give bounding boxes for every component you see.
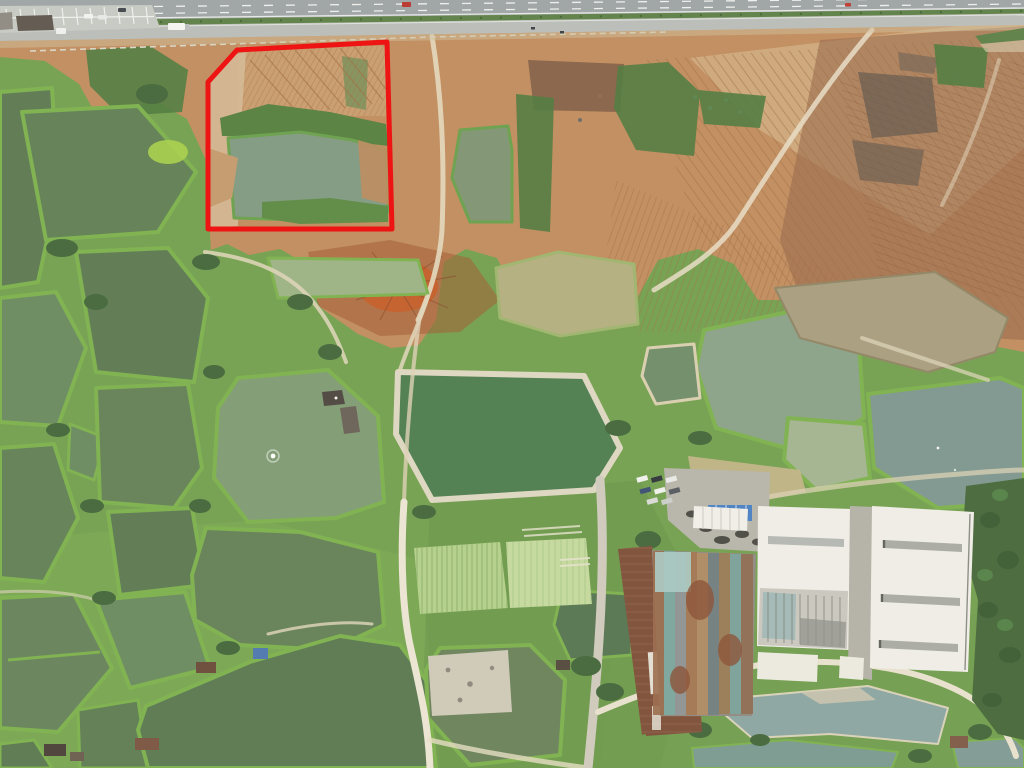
atmospheric-haze — [0, 0, 1024, 768]
aerial-photo — [0, 0, 1024, 768]
aerial-photo-canvas — [0, 0, 1024, 768]
